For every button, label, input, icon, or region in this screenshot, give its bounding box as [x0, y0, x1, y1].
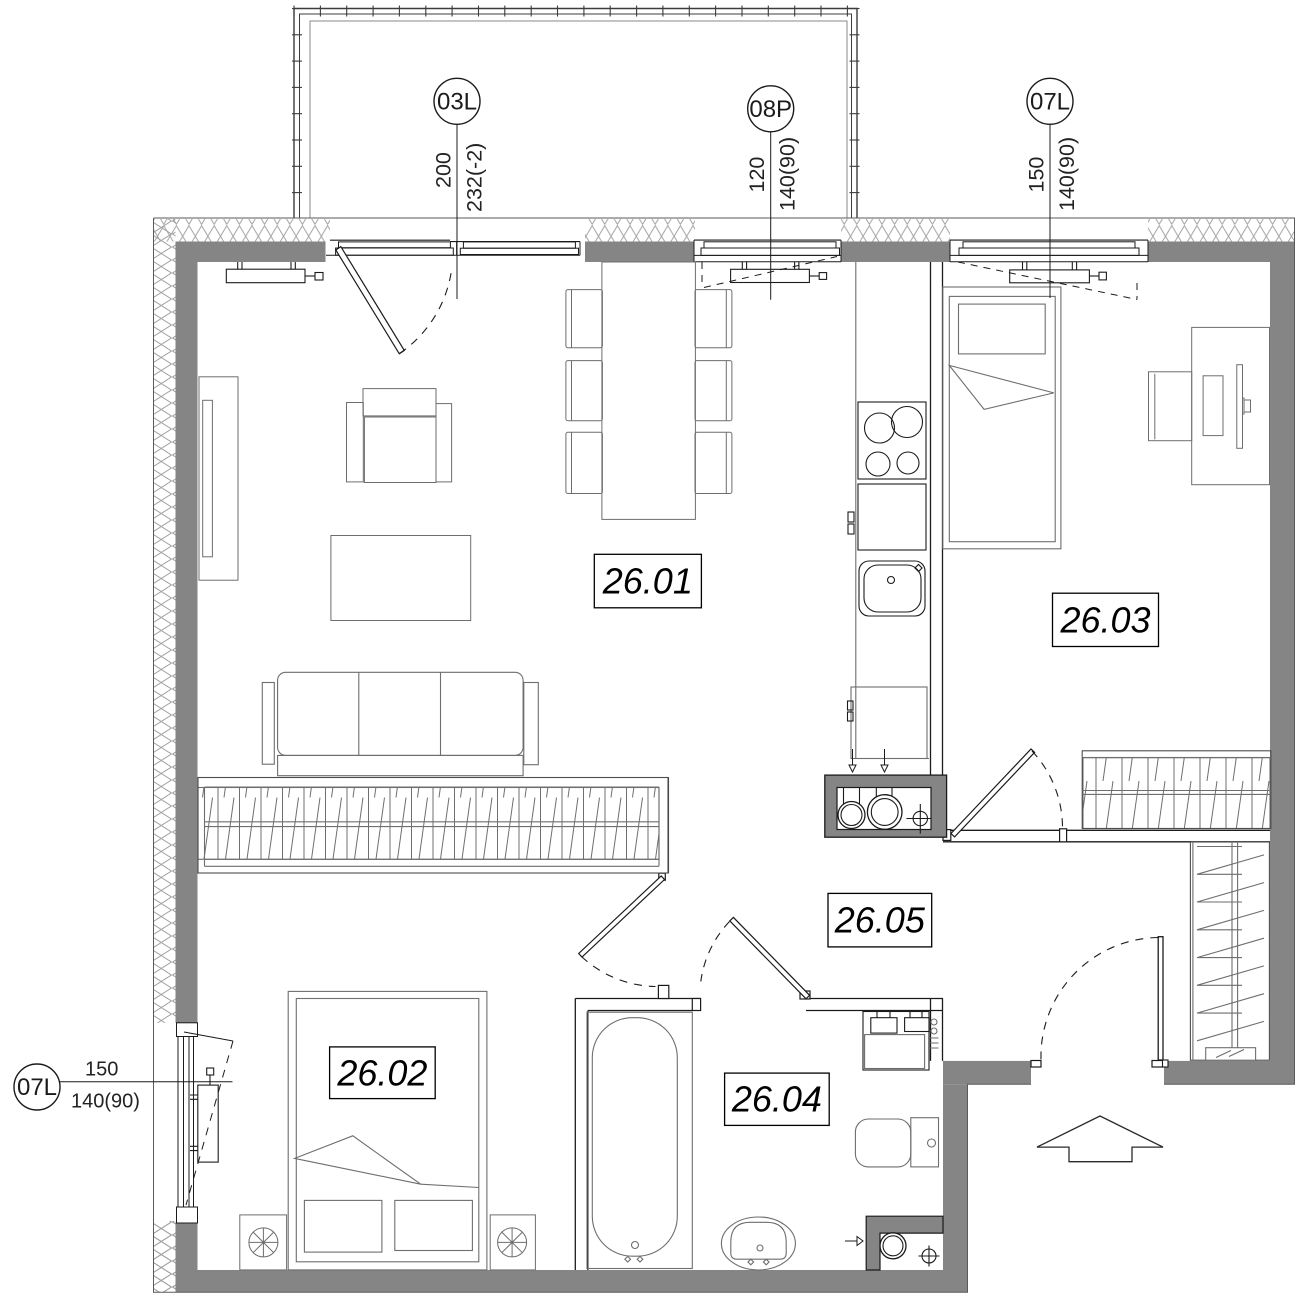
svg-text:03L: 03L — [437, 89, 477, 116]
svg-text:140(90): 140(90) — [1055, 137, 1079, 211]
svg-text:140(90): 140(90) — [776, 137, 800, 211]
svg-text:26.04: 26.04 — [731, 1079, 822, 1120]
svg-text:08P: 08P — [749, 96, 792, 123]
svg-text:07L: 07L — [1030, 89, 1070, 116]
svg-text:120: 120 — [745, 157, 769, 193]
svg-text:26.02: 26.02 — [336, 1053, 427, 1094]
svg-text:140(90): 140(90) — [71, 1091, 140, 1113]
svg-text:150: 150 — [1025, 157, 1049, 193]
svg-text:26.05: 26.05 — [834, 900, 926, 941]
svg-text:232(-2): 232(-2) — [463, 143, 487, 212]
svg-text:200: 200 — [432, 152, 456, 188]
svg-text:07L: 07L — [17, 1074, 57, 1101]
svg-text:150: 150 — [85, 1059, 118, 1081]
svg-text:26.03: 26.03 — [1059, 599, 1150, 640]
svg-text:26.01: 26.01 — [602, 561, 693, 602]
